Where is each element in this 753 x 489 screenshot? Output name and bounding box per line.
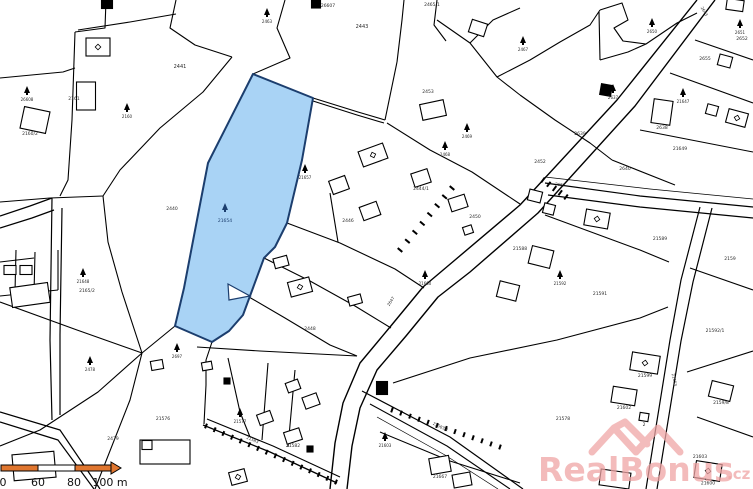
hatch-tick [413, 230, 418, 234]
parcel-boundary-line [253, 0, 290, 74]
building [708, 381, 733, 402]
building [201, 361, 212, 371]
tree-parcel-label: 21648 [77, 279, 90, 284]
building [528, 246, 554, 269]
building-label: 21582 [286, 443, 300, 449]
tree-parcel-label: 2467 [518, 47, 529, 52]
building [86, 38, 110, 56]
building-outline [77, 82, 96, 110]
building-label: 21667 [433, 474, 447, 480]
building [102, 0, 113, 9]
building-outline [452, 472, 472, 488]
building-outline [285, 379, 301, 393]
building [20, 266, 32, 275]
road-line [545, 177, 753, 199]
tree-parcel-label: 2463 [262, 19, 273, 24]
building-outline [102, 0, 113, 9]
tree-parcel-label: 2478 [85, 367, 96, 372]
building-outline [348, 294, 363, 306]
hatch-tick [391, 408, 393, 413]
parcel-boundary-line [78, 14, 176, 30]
hatch-tick [222, 431, 224, 436]
road-line [548, 195, 753, 218]
tree-parcel-label: 21647 [677, 99, 690, 104]
building [359, 201, 381, 220]
building-outline [717, 54, 732, 68]
road-line [657, 208, 712, 489]
tree-parcel-label: 2637 [608, 95, 619, 100]
hatch-tick [558, 190, 562, 195]
tree-icon [237, 408, 243, 417]
parcel-boundary-line [600, 3, 697, 44]
parcel-boundary-line [393, 307, 668, 383]
building-outline [639, 412, 649, 421]
parcel-label: 21591 [593, 291, 607, 297]
building-label: 21602 [617, 405, 631, 411]
hatch-tick [214, 427, 216, 432]
cadastral-map-viewer: 21654 2444/1215992160222159/821600216672… [0, 0, 753, 489]
building-outline [630, 352, 660, 374]
parcel-boundary-line [520, 95, 612, 160]
parcel-label: 2441 [174, 64, 187, 70]
building [257, 410, 274, 425]
tree-parcel-label: 21657 [299, 175, 312, 180]
watermark: RealBonus.cz [538, 422, 751, 489]
parcel-label: 2640 [619, 166, 631, 172]
watermark-suffix: .cz [727, 465, 751, 483]
building-outline [142, 441, 152, 450]
building-outline [284, 428, 303, 444]
hatch-tick [405, 239, 410, 243]
scalebar-label: 100 m [92, 476, 127, 489]
parcel-label: 21592/1 [706, 328, 725, 334]
parcel-boundary-line [264, 258, 391, 328]
parcel-boundary-line [103, 196, 142, 353]
building-outline [312, 0, 321, 8]
building-outline [302, 393, 320, 409]
building-outline [542, 203, 555, 215]
hatch-tick [318, 472, 320, 477]
parcel-boundary-line [0, 68, 75, 78]
hatch-tick [300, 465, 302, 470]
parcel-label: 2165/2 [79, 288, 95, 294]
scalebar-segment [1, 465, 38, 471]
parcel-boundary-line [170, 0, 232, 57]
hatch-tick [398, 248, 403, 252]
tree-parcel-label: 2160 [122, 114, 133, 119]
parcel-boundary-line [249, 297, 357, 356]
building [377, 382, 388, 395]
tree-parcel-label: 2651 [735, 30, 746, 35]
tree-icon [174, 343, 180, 352]
building [307, 446, 313, 452]
building [630, 352, 660, 374]
building-outline [528, 246, 554, 269]
parcel-label: 21649 [673, 146, 687, 152]
road-parcel-label: 2643 [700, 6, 710, 18]
parcel-boundary-line [697, 417, 753, 437]
parcel-boundary-line [612, 160, 675, 185]
building-outline [468, 19, 487, 36]
hatch-tick [450, 186, 455, 190]
building [542, 203, 555, 215]
tree-icon [124, 103, 130, 112]
tree-parcel-label: 21660 [419, 281, 432, 286]
parcel-boundary-line [313, 98, 385, 120]
parcel-label: 2160/2 [22, 131, 38, 137]
parcel-boundary-line [599, 12, 600, 60]
building-label: 2638 [656, 125, 668, 131]
building [4, 266, 16, 275]
tree-parcel-label: 2468 [440, 152, 451, 157]
tree-icon [520, 36, 526, 45]
building-outline [708, 381, 733, 402]
building-outline [429, 455, 451, 474]
building-outline [377, 382, 388, 395]
building [717, 54, 732, 68]
road-line [207, 419, 340, 477]
road-parcel-label: 21653 [671, 373, 679, 387]
building [20, 107, 50, 134]
building-outline [726, 109, 749, 128]
tree-parcel-label: 21592 [554, 281, 567, 286]
hatch-tick [427, 213, 432, 217]
building [420, 100, 447, 121]
parcel-boundary-line [262, 363, 268, 440]
building-outline [257, 410, 274, 425]
building-outline [420, 100, 447, 121]
road-parcel-label: 2647 [386, 295, 396, 307]
parcel-label: 21576 [156, 416, 170, 422]
parcel-label: 2443 [356, 24, 369, 30]
parcel-label: 2448 [304, 326, 316, 332]
tree-icon [302, 164, 308, 173]
road-line [347, 0, 715, 489]
parcel-label: 21589 [653, 236, 667, 242]
hatch-tick [490, 442, 492, 447]
building [229, 469, 248, 486]
building-outline [359, 201, 381, 220]
building [429, 455, 451, 474]
hatch-tick [335, 480, 337, 485]
building [77, 82, 96, 110]
scalebar-segment [38, 465, 75, 471]
parcel-label: 2652 [736, 36, 748, 42]
road-line [60, 208, 62, 415]
building-label: 2159/8 [713, 400, 729, 406]
hatch-tick [435, 204, 440, 208]
building [273, 255, 289, 268]
building-outline [4, 266, 16, 275]
building [224, 378, 230, 384]
hatch-tick [481, 438, 483, 443]
tree-icon [680, 88, 686, 97]
tree-icon [264, 8, 270, 17]
tree-parcel-label: 2650 [647, 29, 658, 34]
road-line [50, 198, 52, 420]
tree-icon [649, 18, 655, 27]
tree-icon [557, 270, 563, 279]
parcel-label: 2440 [166, 206, 178, 212]
parcel-boundary-line [197, 347, 357, 356]
hatch-tick [499, 445, 501, 450]
hatch-tick [472, 435, 474, 440]
building-outline [20, 266, 32, 275]
highlighted-parcel[interactable] [175, 74, 313, 342]
building-outline [411, 169, 431, 188]
hatch-tick [326, 476, 328, 481]
tree-parcel-label: 21577 [234, 419, 247, 424]
parcel-label: 2452 [534, 159, 546, 165]
scalebar-label: 0 [0, 476, 7, 489]
building-label: 21599 [638, 373, 652, 379]
parcel-boundary-line [0, 302, 142, 353]
hatch-tick [463, 432, 465, 437]
hatch-tick [553, 186, 557, 191]
parcel-label: 2655 [699, 56, 711, 62]
building [639, 412, 649, 421]
scalebar-arrow-icon [111, 462, 121, 474]
parcel-boundary-line [385, 62, 397, 120]
hatch-tick [409, 414, 411, 419]
building [726, 0, 744, 12]
building-outline [358, 143, 388, 167]
parcel-label: 2161 [68, 96, 80, 102]
hatch-tick [231, 435, 233, 440]
building-outline [462, 225, 473, 235]
building-outline [20, 107, 50, 134]
hatch-tick [442, 195, 447, 199]
building-outline [10, 282, 50, 307]
building-outline [201, 361, 212, 371]
building-outline [651, 99, 673, 125]
parcel-label: 2453 [422, 89, 434, 95]
building [452, 472, 472, 488]
building [10, 282, 50, 307]
building-outline [273, 255, 289, 268]
parcel-label: 2159 [724, 256, 736, 262]
building [468, 19, 487, 36]
tree-parcel-label: 2697 [172, 354, 183, 359]
building-outline [584, 209, 610, 229]
tree-icon [24, 86, 30, 95]
building [348, 294, 363, 306]
building-outline [287, 277, 312, 297]
parcel-boundary-line [330, 193, 338, 242]
parcel-label: 21588 [513, 246, 527, 252]
parcel-boundary-line [640, 130, 753, 152]
building [285, 379, 301, 393]
hatch-tick [427, 420, 429, 425]
building [651, 99, 673, 125]
parcel-boundary-line [397, 0, 404, 62]
parcel-boundary-line [206, 342, 212, 360]
building [302, 393, 320, 409]
building [284, 428, 303, 444]
parcel-label: 2446 [342, 218, 354, 224]
tree-icon [422, 270, 428, 279]
tree-icon [87, 356, 93, 365]
building [329, 176, 350, 195]
building [150, 360, 163, 371]
parcel-boundary-line [0, 258, 34, 262]
building-outline [705, 104, 718, 117]
highlighted-parcel-number: 21654 [218, 218, 232, 224]
hatch-tick [541, 178, 545, 183]
building [527, 189, 542, 203]
tree-parcel-label: 21603 [379, 443, 392, 448]
parcel-boundary-line [228, 358, 250, 437]
parcel-label: 2450 [469, 214, 481, 220]
building-label: 2444/1 [413, 186, 429, 192]
building-outline [150, 360, 163, 371]
building-label: 2 [643, 422, 646, 428]
building [496, 281, 519, 301]
building-outline [307, 446, 313, 452]
building-outline [611, 386, 637, 406]
building-outline [329, 176, 350, 195]
buildings: 2444/1215992160222159/821600216672638215… [4, 0, 748, 489]
building [705, 104, 718, 117]
building [287, 277, 312, 297]
building-outline [527, 189, 542, 203]
road-parcel-label: 21583/1 [432, 421, 450, 433]
highlighted-parcel-group: 21654 [175, 74, 313, 342]
parcel-boundary-line [690, 268, 753, 290]
parcel-label: 26607 [321, 3, 335, 9]
hatch-tick [309, 469, 311, 474]
building [312, 0, 321, 8]
building-outline [448, 194, 468, 212]
scalebar-label: 80 [67, 476, 81, 489]
building [358, 143, 388, 167]
parcel-boundary-line [687, 351, 753, 372]
building-outline [224, 378, 230, 384]
scalebar-segment [75, 465, 111, 471]
parcel-boundary-line [313, 101, 384, 123]
parcel-boundary-line [497, 10, 600, 77]
road-line [545, 183, 753, 207]
tree-icon [737, 19, 743, 28]
tree-parcel-label: 2469 [462, 134, 473, 139]
building [584, 209, 610, 229]
building-outline [86, 38, 110, 56]
hatch-tick [454, 429, 456, 434]
parcel-label: 2479 [107, 436, 119, 442]
building-outline [726, 0, 744, 12]
parcel-boundary-line [380, 432, 520, 483]
hatch-tick [205, 424, 207, 429]
building [448, 194, 468, 212]
parcel-boundary-line [60, 32, 75, 196]
building [142, 441, 152, 450]
parcel-boundary-line [387, 123, 520, 204]
parcel-label: 2639 [574, 131, 586, 137]
tree-icon [80, 268, 86, 277]
building [411, 169, 431, 188]
tree-parcel-label: 26608 [21, 97, 34, 102]
building-outline [229, 469, 248, 486]
parcel-boundary-line [142, 326, 175, 353]
tree-icon [464, 123, 470, 132]
building-outline [496, 281, 519, 301]
building [726, 109, 749, 128]
parcel-boundary-line [0, 353, 142, 446]
parcel-label: 2465/1 [424, 2, 440, 8]
building [611, 386, 637, 406]
cadastral-map: 21654 2444/1215992160222159/821600216672… [0, 0, 753, 489]
parcel-boundary-line [600, 44, 646, 60]
watermark-text: RealBonus [538, 450, 734, 489]
parcel-label: 21578 [556, 416, 570, 422]
tree-icon [442, 141, 448, 150]
scalebar-label: 60 [31, 476, 45, 489]
building [462, 225, 473, 235]
hatch-tick [420, 222, 425, 226]
